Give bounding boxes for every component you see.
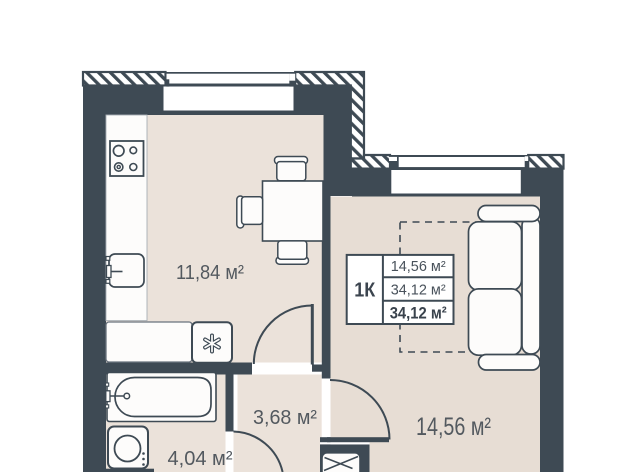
svg-text:1К: 1К: [354, 280, 376, 302]
svg-text:11,84 м²: 11,84 м²: [176, 262, 244, 284]
svg-text:34,12 м²: 34,12 м²: [391, 283, 446, 299]
svg-text:14,56 м²: 14,56 м²: [416, 413, 491, 441]
svg-text:3,68 м²: 3,68 м²: [253, 407, 317, 429]
svg-text:4,04 м²: 4,04 м²: [168, 448, 233, 470]
svg-text:34,12 м²: 34,12 м²: [390, 305, 447, 323]
svg-text:14,56 м²: 14,56 м²: [391, 259, 446, 275]
